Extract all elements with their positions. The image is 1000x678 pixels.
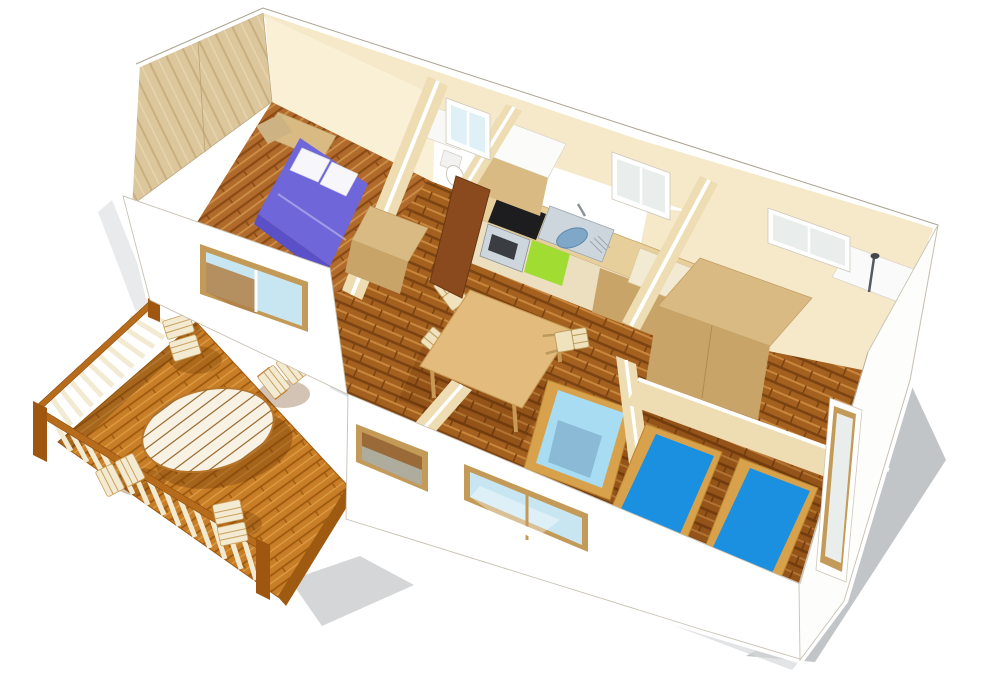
floorplan-render — [0, 0, 1000, 678]
west-corner-post — [33, 401, 47, 462]
faucet-icon — [578, 204, 585, 216]
shower-head-icon — [871, 253, 880, 259]
floorplan-svg — [0, 0, 1000, 678]
south-corner-post — [256, 538, 270, 600]
